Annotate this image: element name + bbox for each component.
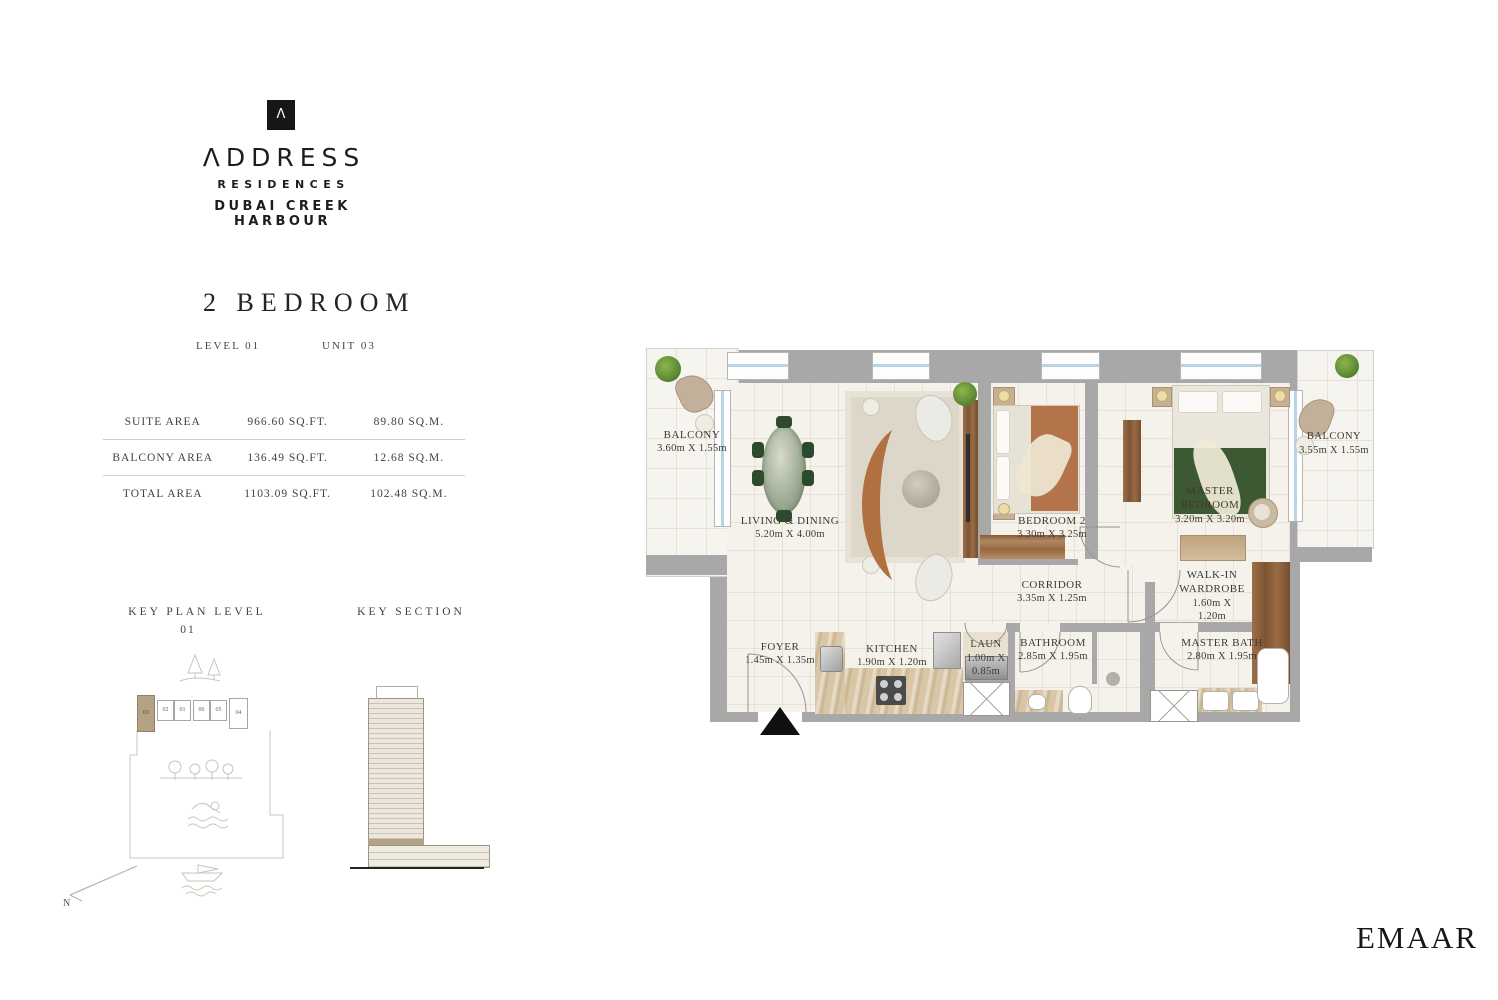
key-plan-unit-04: 04: [229, 698, 248, 729]
room-label-balcony-right: BALCONY3.55m X 1.55m: [1286, 430, 1382, 457]
unit-label: UNIT 03: [322, 340, 376, 352]
room-label-master-bath: MASTER BATH2.80m X 1.95m: [1166, 636, 1278, 664]
area-sqft: 1103.09 SQ.FT.: [222, 488, 352, 500]
area-label: TOTAL AREA: [103, 488, 222, 500]
room-label-living: LIVING & DINING5.20m X 4.00m: [720, 514, 860, 542]
room-label-kitchen: KITCHEN1.90m X 1.20m: [842, 642, 942, 670]
table-row: TOTAL AREA 1103.09 SQ.FT. 102.48 SQ.M.: [103, 476, 465, 511]
ground-line: [350, 867, 484, 869]
area-sqm: 89.80 SQ.M.: [353, 416, 465, 428]
room-label-balcony-left: BALCONY3.60m X 1.55m: [637, 428, 747, 456]
brand-line-location: DUBAI CREEK HARBOUR: [164, 199, 401, 229]
room-label-bedroom2: BEDROOM 23.30m X 3.25m: [997, 514, 1107, 542]
brand-wordmark: ΛDDRESS: [167, 143, 401, 172]
key-section-diagram: [348, 683, 488, 873]
key-plan-unit-06: 06: [193, 700, 210, 721]
boat-icon: [182, 865, 222, 896]
trees-row-icon: [160, 760, 242, 780]
table-row: SUITE AREA 966.60 SQ.FT. 89.80 SQ.M.: [103, 404, 465, 440]
sofa: [862, 430, 892, 580]
room-label-foyer: FOYER1.45m X 1.35m: [734, 640, 826, 668]
table-row: BALCONY AREA 136.49 SQ.FT. 12.68 SQ.M.: [103, 440, 465, 476]
key-plan-unit-05: 05: [210, 700, 227, 721]
room-label-walkin: WALK-IN WARDROBE 1.60m X 1.20m: [1173, 568, 1251, 624]
room-label-corridor: CORRIDOR3.35m X 1.25m: [992, 578, 1112, 606]
trees-icon: [180, 655, 220, 681]
key-plan-unit-02: 02: [157, 700, 174, 721]
key-plan-unit-01: 01: [174, 700, 191, 721]
emaar-logo: EMAAR: [1356, 920, 1476, 956]
area-sqm: 102.48 SQ.M.: [353, 488, 465, 500]
floorplan: BALCONY3.60m X 1.55m LIVING & DINING5.20…: [640, 342, 1385, 742]
north-arrow: N: [55, 858, 155, 913]
page-title: 2 BEDROOM: [203, 288, 416, 318]
north-label: N: [63, 898, 70, 909]
key-plan-unit-03: 03: [137, 695, 155, 732]
area-sqm: 12.68 SQ.M.: [353, 452, 465, 464]
area-label: BALCONY AREA: [103, 452, 222, 464]
brand-logo: Λ ΛDDRESS RESIDENCES DUBAI CREEK HARBOUR: [161, 100, 401, 229]
area-table: SUITE AREA 966.60 SQ.FT. 89.80 SQ.M. BAL…: [103, 404, 465, 511]
key-section-title: KEY SECTION: [311, 606, 511, 618]
brand-line-residences: RESIDENCES: [166, 178, 401, 191]
key-plan-number: 01: [88, 624, 288, 636]
swimmer-icon: [188, 802, 228, 828]
area-sqft: 966.60 SQ.FT.: [222, 416, 352, 428]
area-sqft: 136.49 SQ.FT.: [222, 452, 352, 464]
level-label: LEVEL 01: [196, 340, 260, 352]
entrance-marker: [760, 707, 800, 735]
area-label: SUITE AREA: [103, 416, 222, 428]
doors-overlay: [640, 342, 1385, 742]
brand-logo-icon: Λ: [267, 100, 295, 130]
room-label-bathroom: BATHROOM2.85m X 1.95m: [1001, 636, 1105, 664]
key-plan-title: KEY PLAN LEVEL: [97, 606, 297, 618]
tower-elevation: [368, 698, 424, 841]
room-label-master-bedroom: MASTER BEDROOM3.20m X 3.20m: [1167, 484, 1253, 526]
podium: [368, 845, 490, 868]
